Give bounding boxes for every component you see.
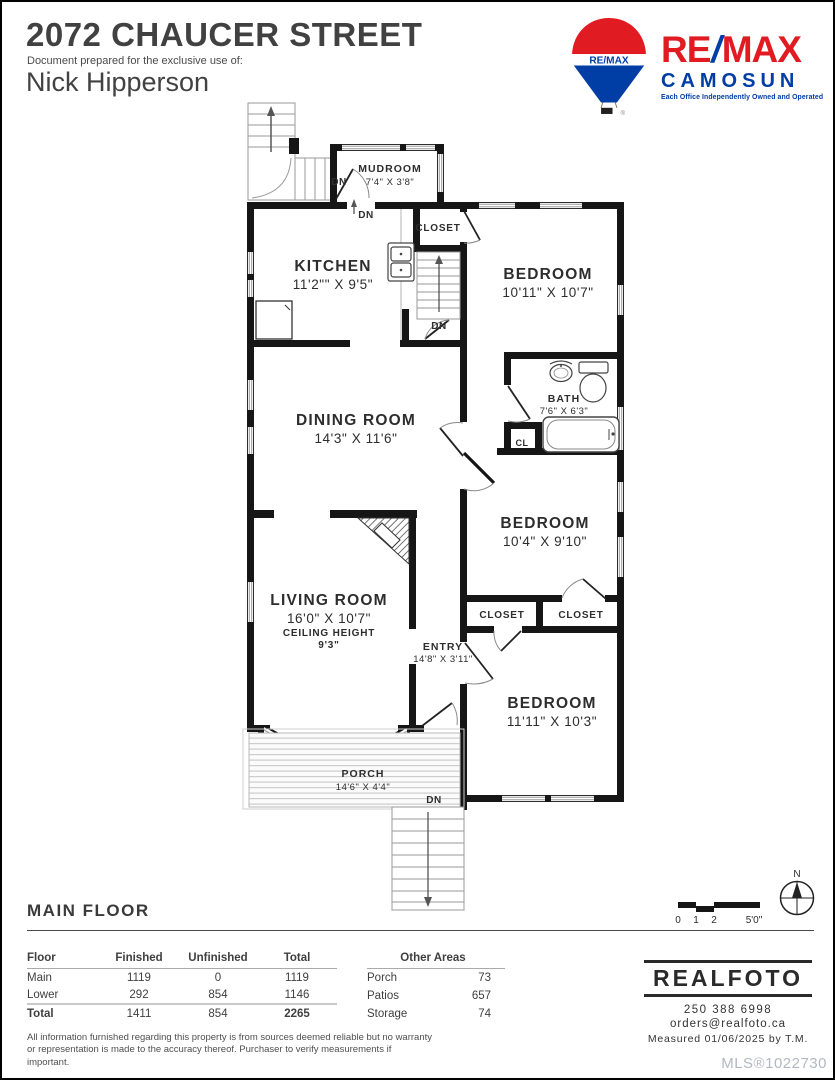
table-row-total: Total 1411 854 2265 — [27, 1004, 337, 1022]
realfoto-block: REALFOTO 250 388 6998 orders@realfoto.ca… — [638, 960, 818, 1045]
room-label-bedroom1: BEDROOM — [503, 266, 592, 283]
scale-2: 2 — [711, 915, 717, 926]
other-areas-table: Other Areas Porch 73 Patios 657 Storage … — [367, 950, 505, 1022]
dn-label-mudroom: DN — [331, 177, 346, 188]
section-title: MAIN FLOOR — [27, 901, 150, 921]
interior-stairs — [417, 252, 460, 319]
north-compass: N — [781, 869, 814, 915]
floor-plan-page: 2072 CHAUCER STREET Document prepared fo… — [0, 0, 835, 1080]
floor-area-table: Floor Finished Unfinished Total Main 111… — [27, 950, 337, 1022]
col-header-finished: Finished — [105, 950, 179, 969]
section-divider — [27, 930, 814, 931]
col-header-total: Total — [263, 950, 337, 969]
room-dims-entry: 14'8" X 3'11" — [413, 654, 472, 665]
room-label-bedroom2: BEDROOM — [500, 515, 589, 532]
kitchen-sink — [388, 243, 414, 281]
table-row-main: Main 1119 0 1119 — [27, 969, 337, 987]
dn-label-kitchen-top: DN — [358, 210, 373, 221]
north-label: N — [793, 869, 800, 880]
bathtub — [543, 417, 619, 452]
room-label-bath: BATH — [548, 393, 580, 405]
area-tables: Floor Finished Unfinished Total Main 111… — [27, 950, 505, 1022]
room-dims-kitchen: 11'2"" X 9'5" — [293, 277, 373, 292]
disclaimer-text: All information furnished regarding this… — [27, 1032, 433, 1069]
room-label-bedroom3: BEDROOM — [507, 695, 596, 712]
realfoto-logo: REALFOTO — [638, 963, 818, 994]
fireplace — [358, 518, 409, 564]
bath-sink — [550, 361, 572, 382]
table-row-storage: Storage 74 — [367, 1004, 505, 1022]
scale-bar: 0 1 2 5'0" — [675, 902, 763, 926]
toilet — [579, 362, 608, 402]
ceiling-height-value: 9'3" — [318, 640, 339, 651]
scale-0: 0 — [675, 915, 681, 926]
room-dims-porch: 14'6" X 4'4" — [336, 782, 390, 793]
dn-label-stairs: DN — [431, 321, 446, 332]
room-label-porch: PORCH — [342, 768, 385, 780]
kitchen-appliance — [256, 301, 292, 339]
table-row-patios: Patios 657 — [367, 987, 505, 1005]
exterior-stairs-top — [248, 103, 332, 200]
realfoto-bar-bottom — [644, 994, 812, 997]
scale-1: 1 — [693, 915, 699, 926]
measured-line: Measured 01/06/2025 by T.M. — [638, 1033, 818, 1045]
room-label-kitchen: KITCHEN — [294, 258, 371, 275]
angled-door-leaf — [464, 453, 494, 483]
closet-label-left: CLOSET — [479, 610, 524, 621]
dn-label-porch: DN — [426, 795, 441, 806]
room-dims-bedroom3: 11'11" X 10'3" — [507, 714, 597, 729]
closet-label-cl: CL — [516, 438, 529, 448]
scale-5: 5'0" — [746, 915, 763, 926]
room-label-entry: ENTRY — [423, 641, 463, 653]
closet-label-top: CLOSET — [415, 223, 460, 234]
ceiling-height-label: CEILING HEIGHT — [283, 628, 375, 639]
realfoto-phone: 250 388 6998 — [638, 1004, 818, 1016]
room-dims-dining: 14'3" X 11'6" — [314, 431, 397, 446]
col-header-unfinished: Unfinished — [179, 950, 263, 969]
table-row-lower: Lower 292 854 1146 — [27, 986, 337, 1004]
room-label-mudroom: MUDROOM — [358, 163, 422, 175]
other-areas-header: Other Areas — [367, 950, 505, 969]
room-dims-bedroom1: 10'11" X 10'7" — [502, 285, 593, 300]
room-dims-bedroom2: 10'4" X 9'10" — [503, 534, 587, 549]
closet-label-right: CLOSET — [558, 610, 603, 621]
room-dims-mudroom: 7'4" X 3'8" — [366, 177, 415, 188]
exterior-stairs-bottom — [392, 807, 464, 910]
room-dims-living: 16'0" X 10'7" — [287, 611, 371, 626]
room-label-living: LIVING ROOM — [270, 592, 387, 609]
mls-number: MLS®1022730 — [721, 1055, 827, 1072]
col-header-floor: Floor — [27, 950, 105, 969]
realfoto-email: orders@realfoto.ca — [638, 1018, 818, 1030]
room-dims-bath: 7'6" X 6'3" — [540, 406, 589, 417]
table-row-porch: Porch 73 — [367, 969, 505, 987]
room-label-dining: DINING ROOM — [296, 412, 416, 429]
